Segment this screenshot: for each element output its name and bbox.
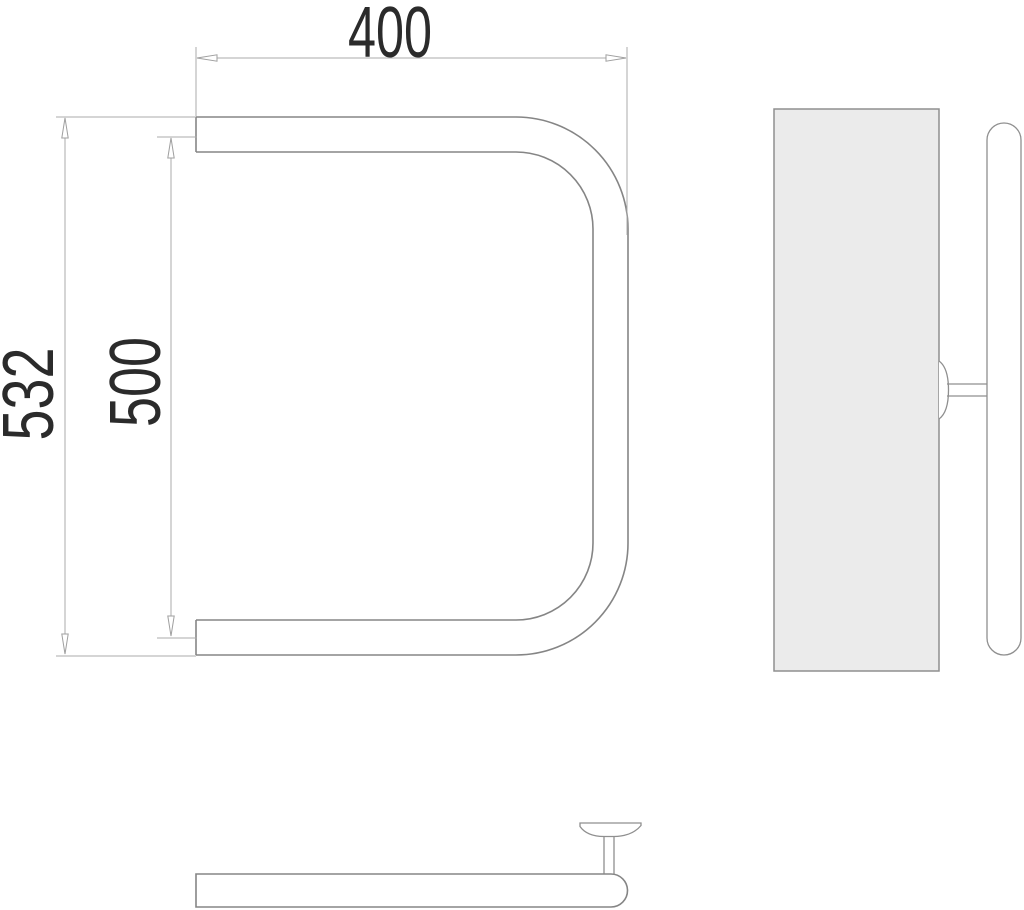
tube-inner-outline	[196, 152, 593, 620]
dimension-label-top-width: 400	[348, 0, 432, 73]
front-view	[196, 117, 628, 655]
bracket-flange-bottom	[580, 823, 641, 837]
arrow-left	[197, 55, 217, 61]
arrow-up	[168, 138, 174, 158]
dimension-label-inner-height: 500	[96, 337, 176, 427]
tube-bottom-profile	[196, 874, 628, 907]
tube-side-profile	[987, 123, 1021, 655]
arrow-right	[606, 55, 626, 61]
wall-plate	[774, 109, 939, 671]
technical-drawing: 400 532 500	[0, 0, 1024, 910]
dimension-inner-height: 500	[96, 137, 197, 638]
arrow-down	[168, 616, 174, 636]
tube-outer-outline	[196, 117, 628, 655]
side-view	[774, 109, 1021, 671]
bracket-flange-side	[939, 361, 949, 419]
dimension-label-overall-height: 532	[0, 348, 69, 441]
bottom-view	[196, 823, 641, 907]
arrow-up	[62, 118, 68, 138]
arrow-down	[62, 634, 68, 654]
